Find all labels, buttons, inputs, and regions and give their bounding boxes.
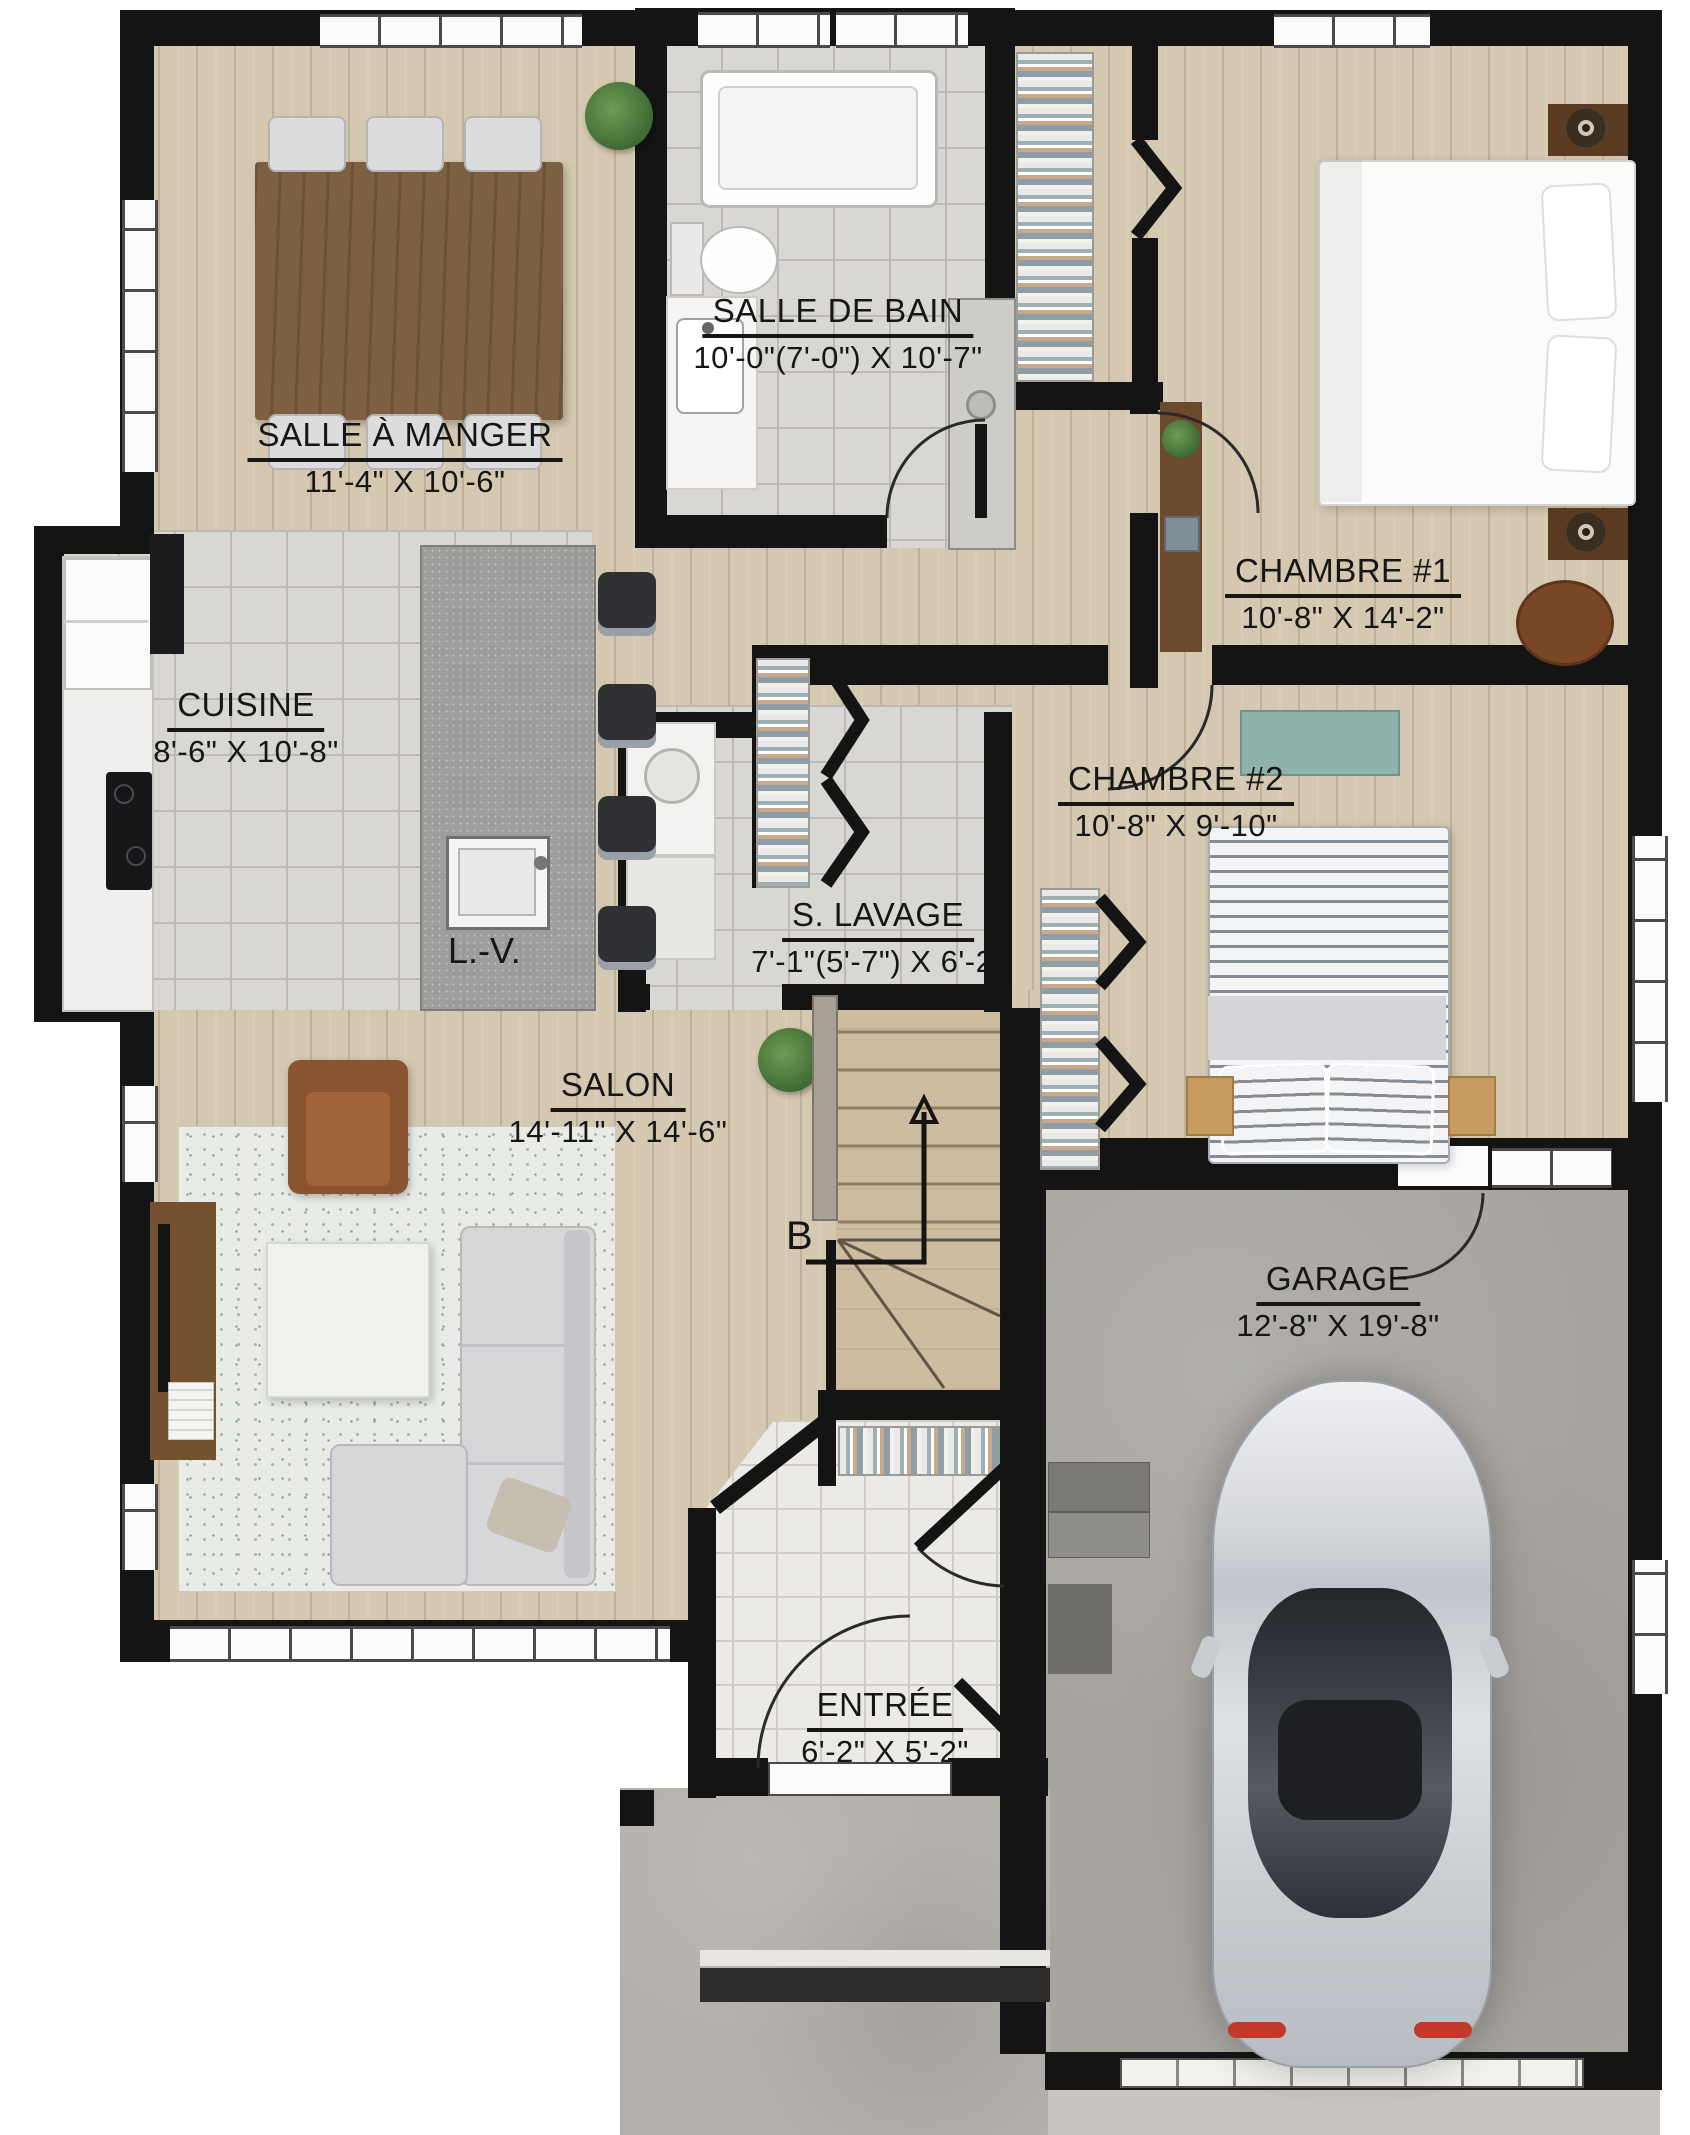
label-entree: ENTRÉE 6'-2" X 5'-2" xyxy=(801,1686,969,1771)
entry-garage-door-leaf xyxy=(918,1468,1004,1548)
label-s-lavage: S. LAVAGE 7'-1"(5'-7") X 6'-2" xyxy=(751,896,1005,981)
chambre1-door-arc xyxy=(1158,413,1258,513)
room-dims: 14'-11" X 14'-6" xyxy=(509,1114,728,1151)
label-salon: SALON 14'-11" X 14'-6" xyxy=(509,1066,728,1151)
room-name: SALLE DE BAIN xyxy=(703,292,973,338)
room-name: S. LAVAGE xyxy=(782,896,974,942)
room-name: SALLE À MANGER xyxy=(248,416,563,462)
entry-garage-door-arc xyxy=(918,1548,1004,1586)
room-dims: 6'-2" X 5'-2" xyxy=(801,1734,969,1771)
door-leaves xyxy=(918,424,1012,1736)
label-chambre-2: CHAMBRE #2 10'-8" X 9'-10" xyxy=(1058,760,1294,845)
label-chambre-1: CHAMBRE #1 10'-8" X 14'-2" xyxy=(1225,552,1461,637)
room-name: SALON xyxy=(551,1066,685,1112)
stairs-b-label: B xyxy=(786,1214,813,1259)
room-dims: 10'-8" X 9'-10" xyxy=(1058,808,1294,845)
chambre2-bifold-icon xyxy=(1100,898,1138,986)
room-dims: 10'-8" X 14'-2" xyxy=(1225,600,1461,637)
label-salle-a-manger: SALLE À MANGER 11'-4" X 10'-6" xyxy=(248,416,563,501)
linen-bifold-icon xyxy=(826,664,862,776)
linen-bifold-icon xyxy=(826,780,862,884)
room-name: ENTRÉE xyxy=(807,1686,964,1732)
floor-plan: SALLE À MANGER 11'-4" X 10'-6" SALLE DE … xyxy=(0,0,1690,2135)
dishwasher-label: L.-V. xyxy=(448,930,521,972)
room-name: CUISINE xyxy=(167,686,324,732)
room-name: CHAMBRE #1 xyxy=(1225,552,1461,598)
room-dims: 8'-6" X 10'-8" xyxy=(153,734,339,771)
stair-treads xyxy=(838,1032,1000,1222)
room-dims: 12'-8" X 19'-8" xyxy=(1236,1308,1439,1345)
room-dims: 7'-1"(5'-7") X 6'-2" xyxy=(751,944,1005,981)
label-salle-de-bain: SALLE DE BAIN 10'-0"(7'-0") X 10'-7" xyxy=(693,292,982,377)
room-dims: 10'-0"(7'-0") X 10'-7" xyxy=(693,340,982,377)
label-cuisine: CUISINE 8'-6" X 10'-8" xyxy=(153,686,339,771)
room-dims: 11'-4" X 10'-6" xyxy=(248,464,563,501)
room-name: CHAMBRE #2 xyxy=(1058,760,1294,806)
bathroom-door-arc xyxy=(887,420,985,518)
room-name: GARAGE xyxy=(1256,1260,1420,1306)
label-garage: GARAGE 12'-8" X 19'-8" xyxy=(1236,1260,1439,1345)
stairs-direction-arrow xyxy=(806,1098,936,1262)
walkin-bifold-icon xyxy=(1136,140,1174,236)
chambre2-bifold-icon xyxy=(1100,1040,1138,1128)
